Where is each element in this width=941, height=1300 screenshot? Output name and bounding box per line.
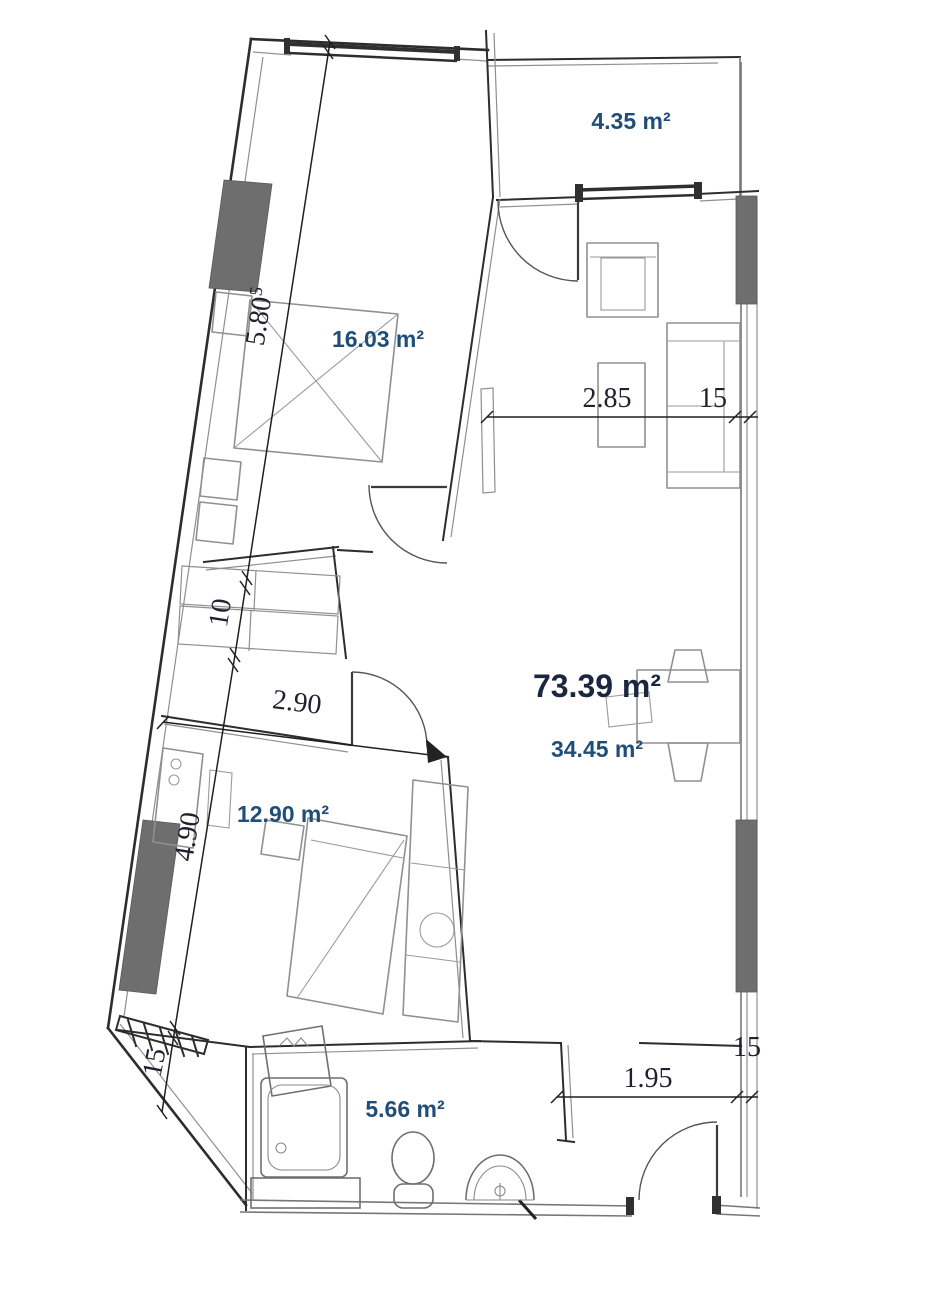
balcony-top-rail-inner: [488, 63, 718, 66]
dim-label-490: 4.90: [168, 810, 206, 863]
closet-right-wall: [333, 547, 346, 658]
sloped-partition: [443, 197, 493, 540]
column-right-top: [736, 196, 757, 304]
entry-door: [639, 1122, 717, 1200]
chair: [668, 650, 708, 682]
window-jamb-icon: [575, 184, 583, 202]
living-window-sill: [580, 195, 698, 199]
dim-label-195: 1.95: [624, 1063, 673, 1094]
balcony-door: [498, 201, 578, 281]
floor-plan-drawing: 5.805 10 4.90 15 2.85 15 2.90 1.95 15 4.…: [0, 0, 941, 1300]
living-top-wall-b: [698, 191, 758, 194]
area-label-balcony: 4.35 m²: [591, 108, 671, 134]
door-jamb-icon: [626, 1197, 634, 1215]
area-label-bathroom: 5.66 m²: [365, 1096, 445, 1122]
dim-label-10: 10: [203, 596, 238, 629]
column-left-top: [209, 180, 272, 292]
top-wall-inner-b: [456, 59, 487, 61]
toilet-base: [394, 1184, 433, 1208]
living-window: [580, 186, 698, 190]
floor-plan-page: 5.805 10 4.90 15 2.85 15 2.90 1.95 15 4.…: [0, 0, 941, 1300]
desk-chair: [207, 770, 232, 828]
bedroom1-door-wall: [338, 550, 372, 552]
bedroom1-door: [369, 485, 447, 563]
bottom-wall: [240, 1200, 632, 1206]
area-label-bedroom2: 12.90 m²: [237, 801, 329, 827]
windows: [116, 38, 702, 1056]
bathroom-top-wall: [250, 1041, 480, 1047]
bath-cabinet: [251, 1178, 360, 1208]
wall-break-mark: [519, 1200, 536, 1219]
toilet: [392, 1132, 434, 1184]
area-label-living: 34.45 m²: [551, 736, 643, 762]
dimension-285: 2.85 15: [481, 383, 758, 423]
bedroom2-door: [352, 672, 427, 747]
dim-label-15-bottom-left: 15: [137, 1046, 173, 1079]
boiler: [420, 913, 454, 947]
furniture-bedroom2: [153, 748, 468, 1022]
lower-left-wall: [108, 1028, 246, 1205]
armchair: [587, 243, 658, 317]
bedroom2-top-wall: [162, 716, 350, 745]
dresser: [200, 458, 241, 500]
shower-drain-icon: [276, 1143, 286, 1153]
living-top-wall-a-inner: [500, 204, 578, 207]
entry-top-wall-a: [470, 1041, 560, 1043]
living-top-wall-a: [497, 197, 580, 200]
dresser: [196, 502, 237, 544]
dim-label-285: 2.85: [583, 383, 632, 414]
balcony-top-rail: [488, 57, 740, 60]
window-jamb-icon: [454, 46, 460, 61]
bathroom-right-wall-cap: [558, 1140, 574, 1142]
corridor-closets: [178, 566, 340, 654]
shower-tray: [261, 1078, 347, 1177]
dimension-290: 2.90: [157, 684, 447, 763]
bedroom1-bottom-wall: [204, 547, 338, 562]
area-label-total: 73.39 m²: [533, 668, 661, 704]
chair: [668, 743, 708, 781]
radiator: [481, 388, 495, 493]
bedroom1-window-sill: [289, 53, 457, 61]
window-jamb-icon: [284, 38, 290, 54]
room-labels: 4.35 m² 16.03 m² 73.39 m² 34.45 m² 12.90…: [237, 108, 671, 1122]
dim-label-15-bottom-right: 15: [733, 1032, 761, 1063]
dim-label-15-right: 15: [699, 383, 727, 414]
area-label-bedroom1: 16.03 m²: [332, 326, 424, 352]
bedroom1-right-wall: [486, 31, 493, 197]
entry-top-wall-b: [640, 1043, 741, 1046]
window-jamb-icon: [694, 182, 702, 199]
dim-label-290: 2.90: [271, 684, 323, 721]
column-right-bottom: [736, 820, 757, 992]
dim-arrow-icon: [426, 739, 447, 763]
